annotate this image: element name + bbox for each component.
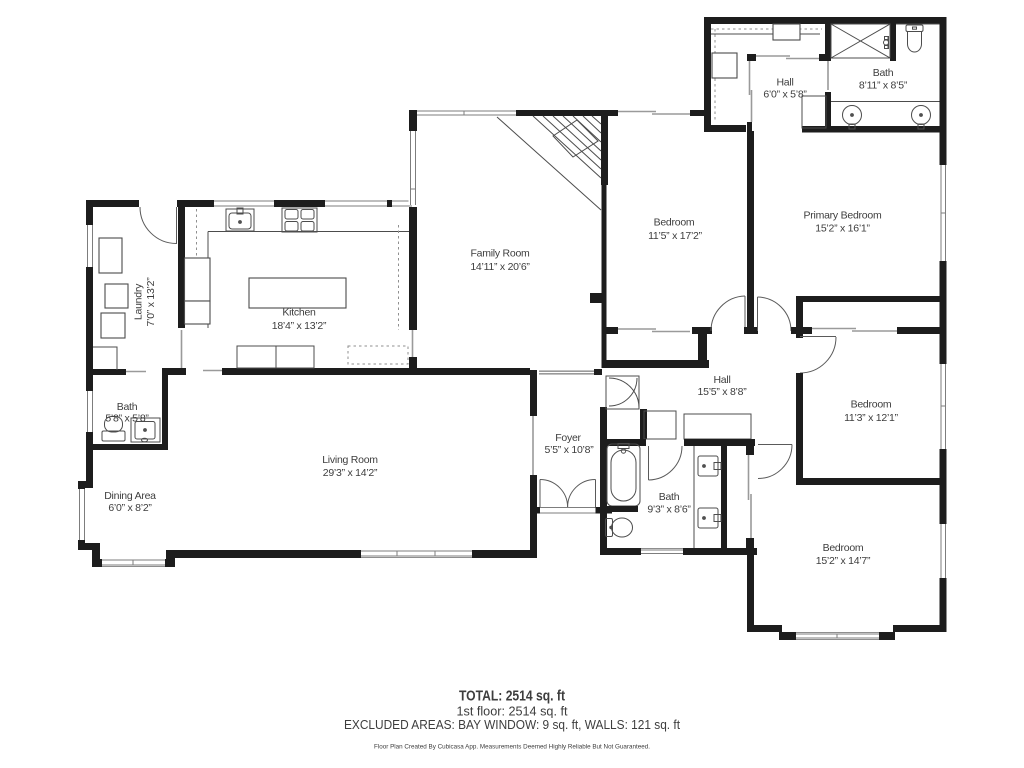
svg-text:14’11” x 20’6”: 14’11” x 20’6” bbox=[470, 261, 530, 273]
svg-text:11’5” x 17’2”: 11’5” x 17’2” bbox=[648, 230, 703, 242]
svg-text:15’2” x 14’7”: 15’2” x 14’7” bbox=[816, 555, 871, 567]
svg-text:15’2” x 16’1”: 15’2” x 16’1” bbox=[815, 223, 870, 235]
svg-text:Bedroom: Bedroom bbox=[823, 542, 864, 554]
svg-text:6’0” x 8’2”: 6’0” x 8’2” bbox=[108, 502, 152, 514]
svg-text:Family Room: Family Room bbox=[470, 248, 530, 260]
svg-text:Bedroom: Bedroom bbox=[654, 217, 695, 229]
svg-text:15’5” x 8’8”: 15’5” x 8’8” bbox=[698, 386, 748, 398]
svg-text:Dining Area: Dining Area bbox=[104, 490, 156, 502]
svg-text:9’3” x 8’6”: 9’3” x 8’6” bbox=[647, 504, 691, 516]
svg-text:Bath: Bath bbox=[117, 401, 138, 413]
svg-text:TOTAL: 2514 sq. ft: TOTAL: 2514 sq. ft bbox=[459, 689, 565, 705]
svg-text:Hall: Hall bbox=[713, 374, 730, 386]
svg-text:8’11” x 8’5”: 8’11” x 8’5” bbox=[859, 80, 908, 92]
svg-text:11’3” x 12’1”: 11’3” x 12’1” bbox=[844, 412, 899, 424]
svg-text:Bath: Bath bbox=[873, 67, 894, 79]
svg-text:Living Room: Living Room bbox=[322, 454, 378, 466]
svg-text:EXCLUDED AREAS: BAY WINDOW: 9: EXCLUDED AREAS: BAY WINDOW: 9 sq. ft, WA… bbox=[344, 717, 680, 732]
svg-text:5’5” x 10’8”: 5’5” x 10’8” bbox=[545, 444, 595, 456]
svg-text:29’3” x 14’2”: 29’3” x 14’2” bbox=[323, 467, 378, 479]
svg-text:Bath: Bath bbox=[659, 491, 680, 503]
svg-text:Foyer: Foyer bbox=[555, 432, 581, 444]
svg-text:Laundry: Laundry bbox=[133, 283, 145, 320]
svg-text:Hall: Hall bbox=[776, 77, 793, 89]
svg-text:6’0” x 5’8”: 6’0” x 5’8” bbox=[763, 89, 807, 101]
svg-text:Floor Plan Created By Cubicasa: Floor Plan Created By Cubicasa App. Meas… bbox=[374, 744, 650, 751]
svg-text:Bedroom: Bedroom bbox=[851, 399, 892, 411]
svg-text:5’8” x 5’8”: 5’8” x 5’8” bbox=[105, 413, 149, 425]
svg-text:Kitchen: Kitchen bbox=[282, 307, 316, 319]
svg-text:18’4” x 13’2”: 18’4” x 13’2” bbox=[272, 320, 327, 332]
svg-text:Primary Bedroom: Primary Bedroom bbox=[804, 210, 882, 222]
svg-text:7’0” x 13’2”: 7’0” x 13’2” bbox=[145, 277, 157, 327]
